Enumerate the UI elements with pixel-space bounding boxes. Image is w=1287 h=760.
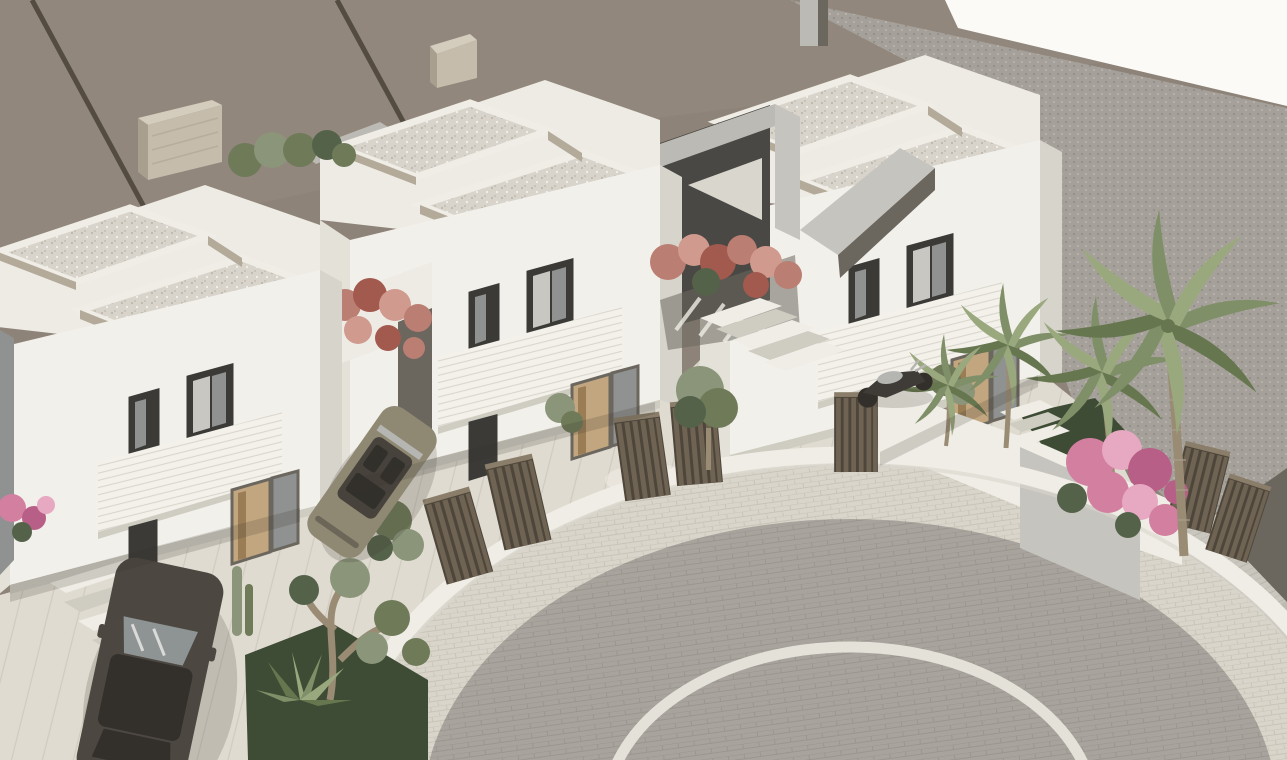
scene-svg (0, 0, 1287, 760)
render-canvas (0, 0, 1287, 760)
cactus (245, 584, 253, 636)
left-edge-glazing (0, 330, 14, 575)
cactus (232, 566, 242, 636)
